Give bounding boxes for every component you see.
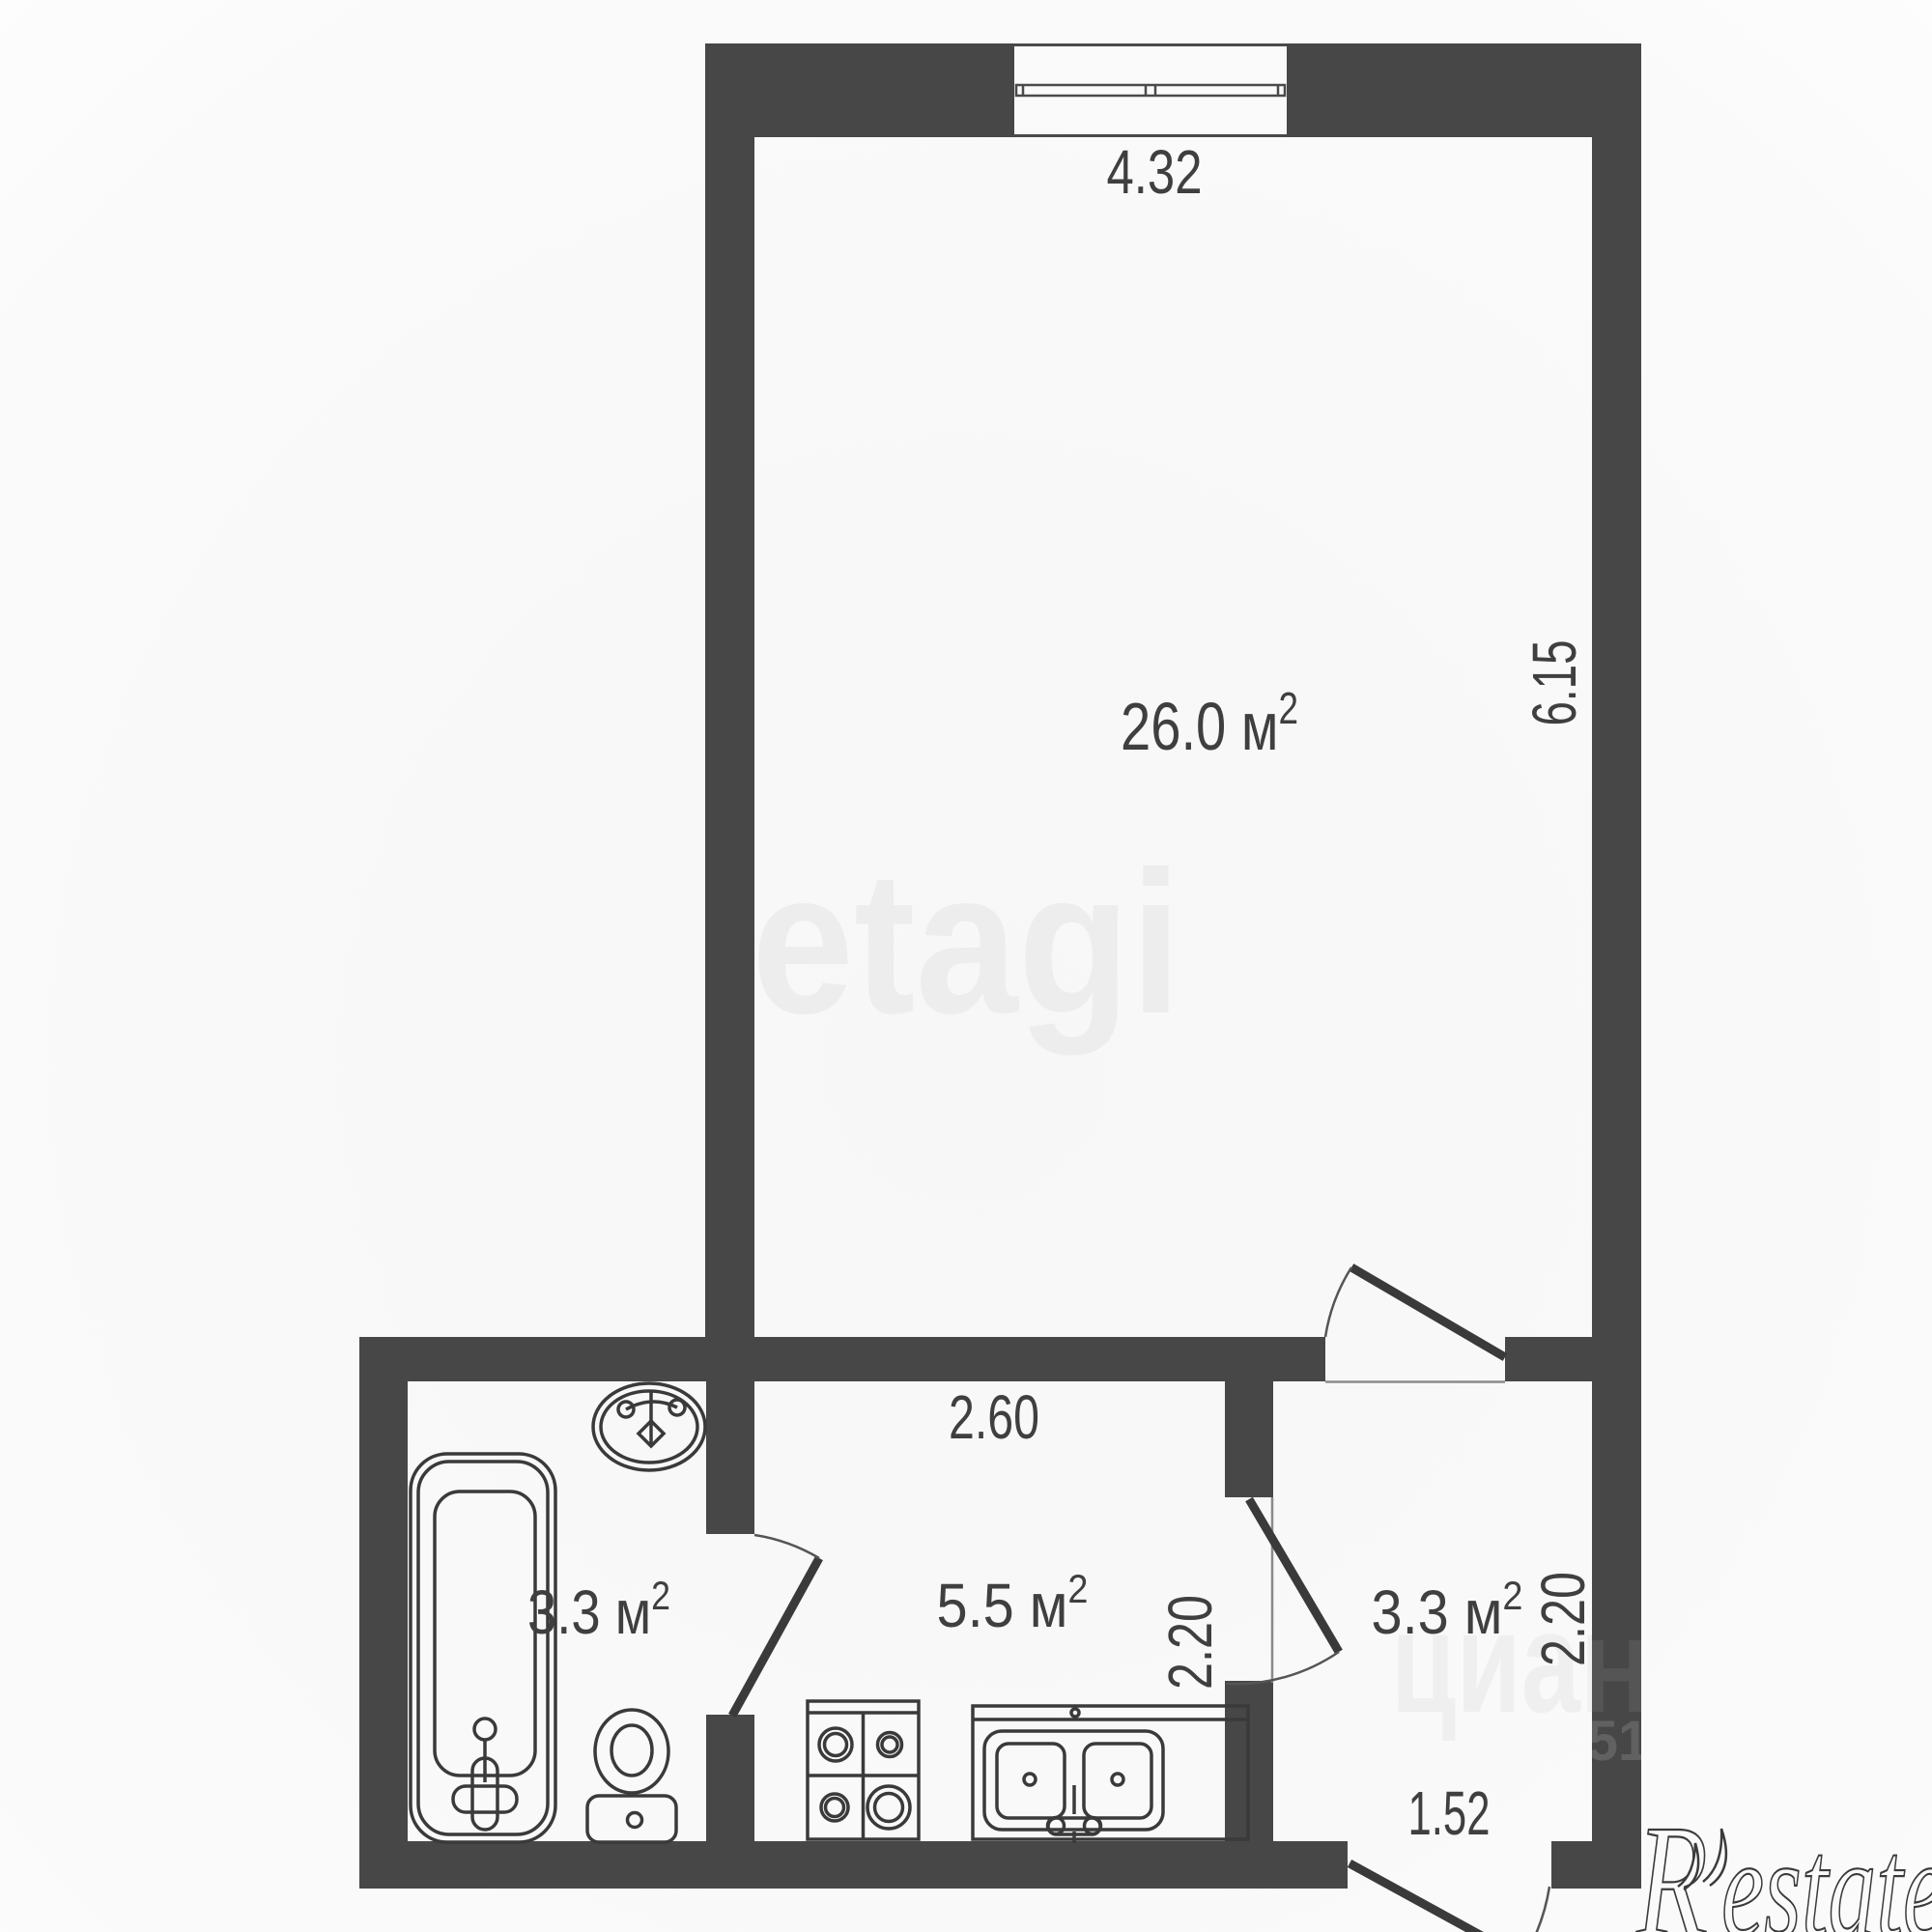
svg-text:н: н — [1576, 1589, 1658, 1741]
svg-text:R: R — [1635, 1792, 1708, 1932]
svg-text:4.32: 4.32 — [1107, 137, 1203, 207]
svg-text:etagi: etagi — [752, 829, 1181, 1056]
svg-text:6.15: 6.15 — [1520, 640, 1589, 726]
svg-text:26.0 м2: 26.0 м2 — [1121, 683, 1298, 764]
svg-text:5.5 м2: 5.5 м2 — [937, 1566, 1089, 1640]
svg-text:1.52: 1.52 — [1408, 1778, 1491, 1848]
svg-text:3.3 м2: 3.3 м2 — [527, 1573, 670, 1647]
svg-text:estate: estate — [1721, 1809, 1932, 1932]
svg-text:2.20: 2.20 — [1155, 1595, 1225, 1690]
svg-text:3.3 м2: 3.3 м2 — [1372, 1573, 1523, 1647]
svg-text:2.60: 2.60 — [949, 1382, 1039, 1452]
